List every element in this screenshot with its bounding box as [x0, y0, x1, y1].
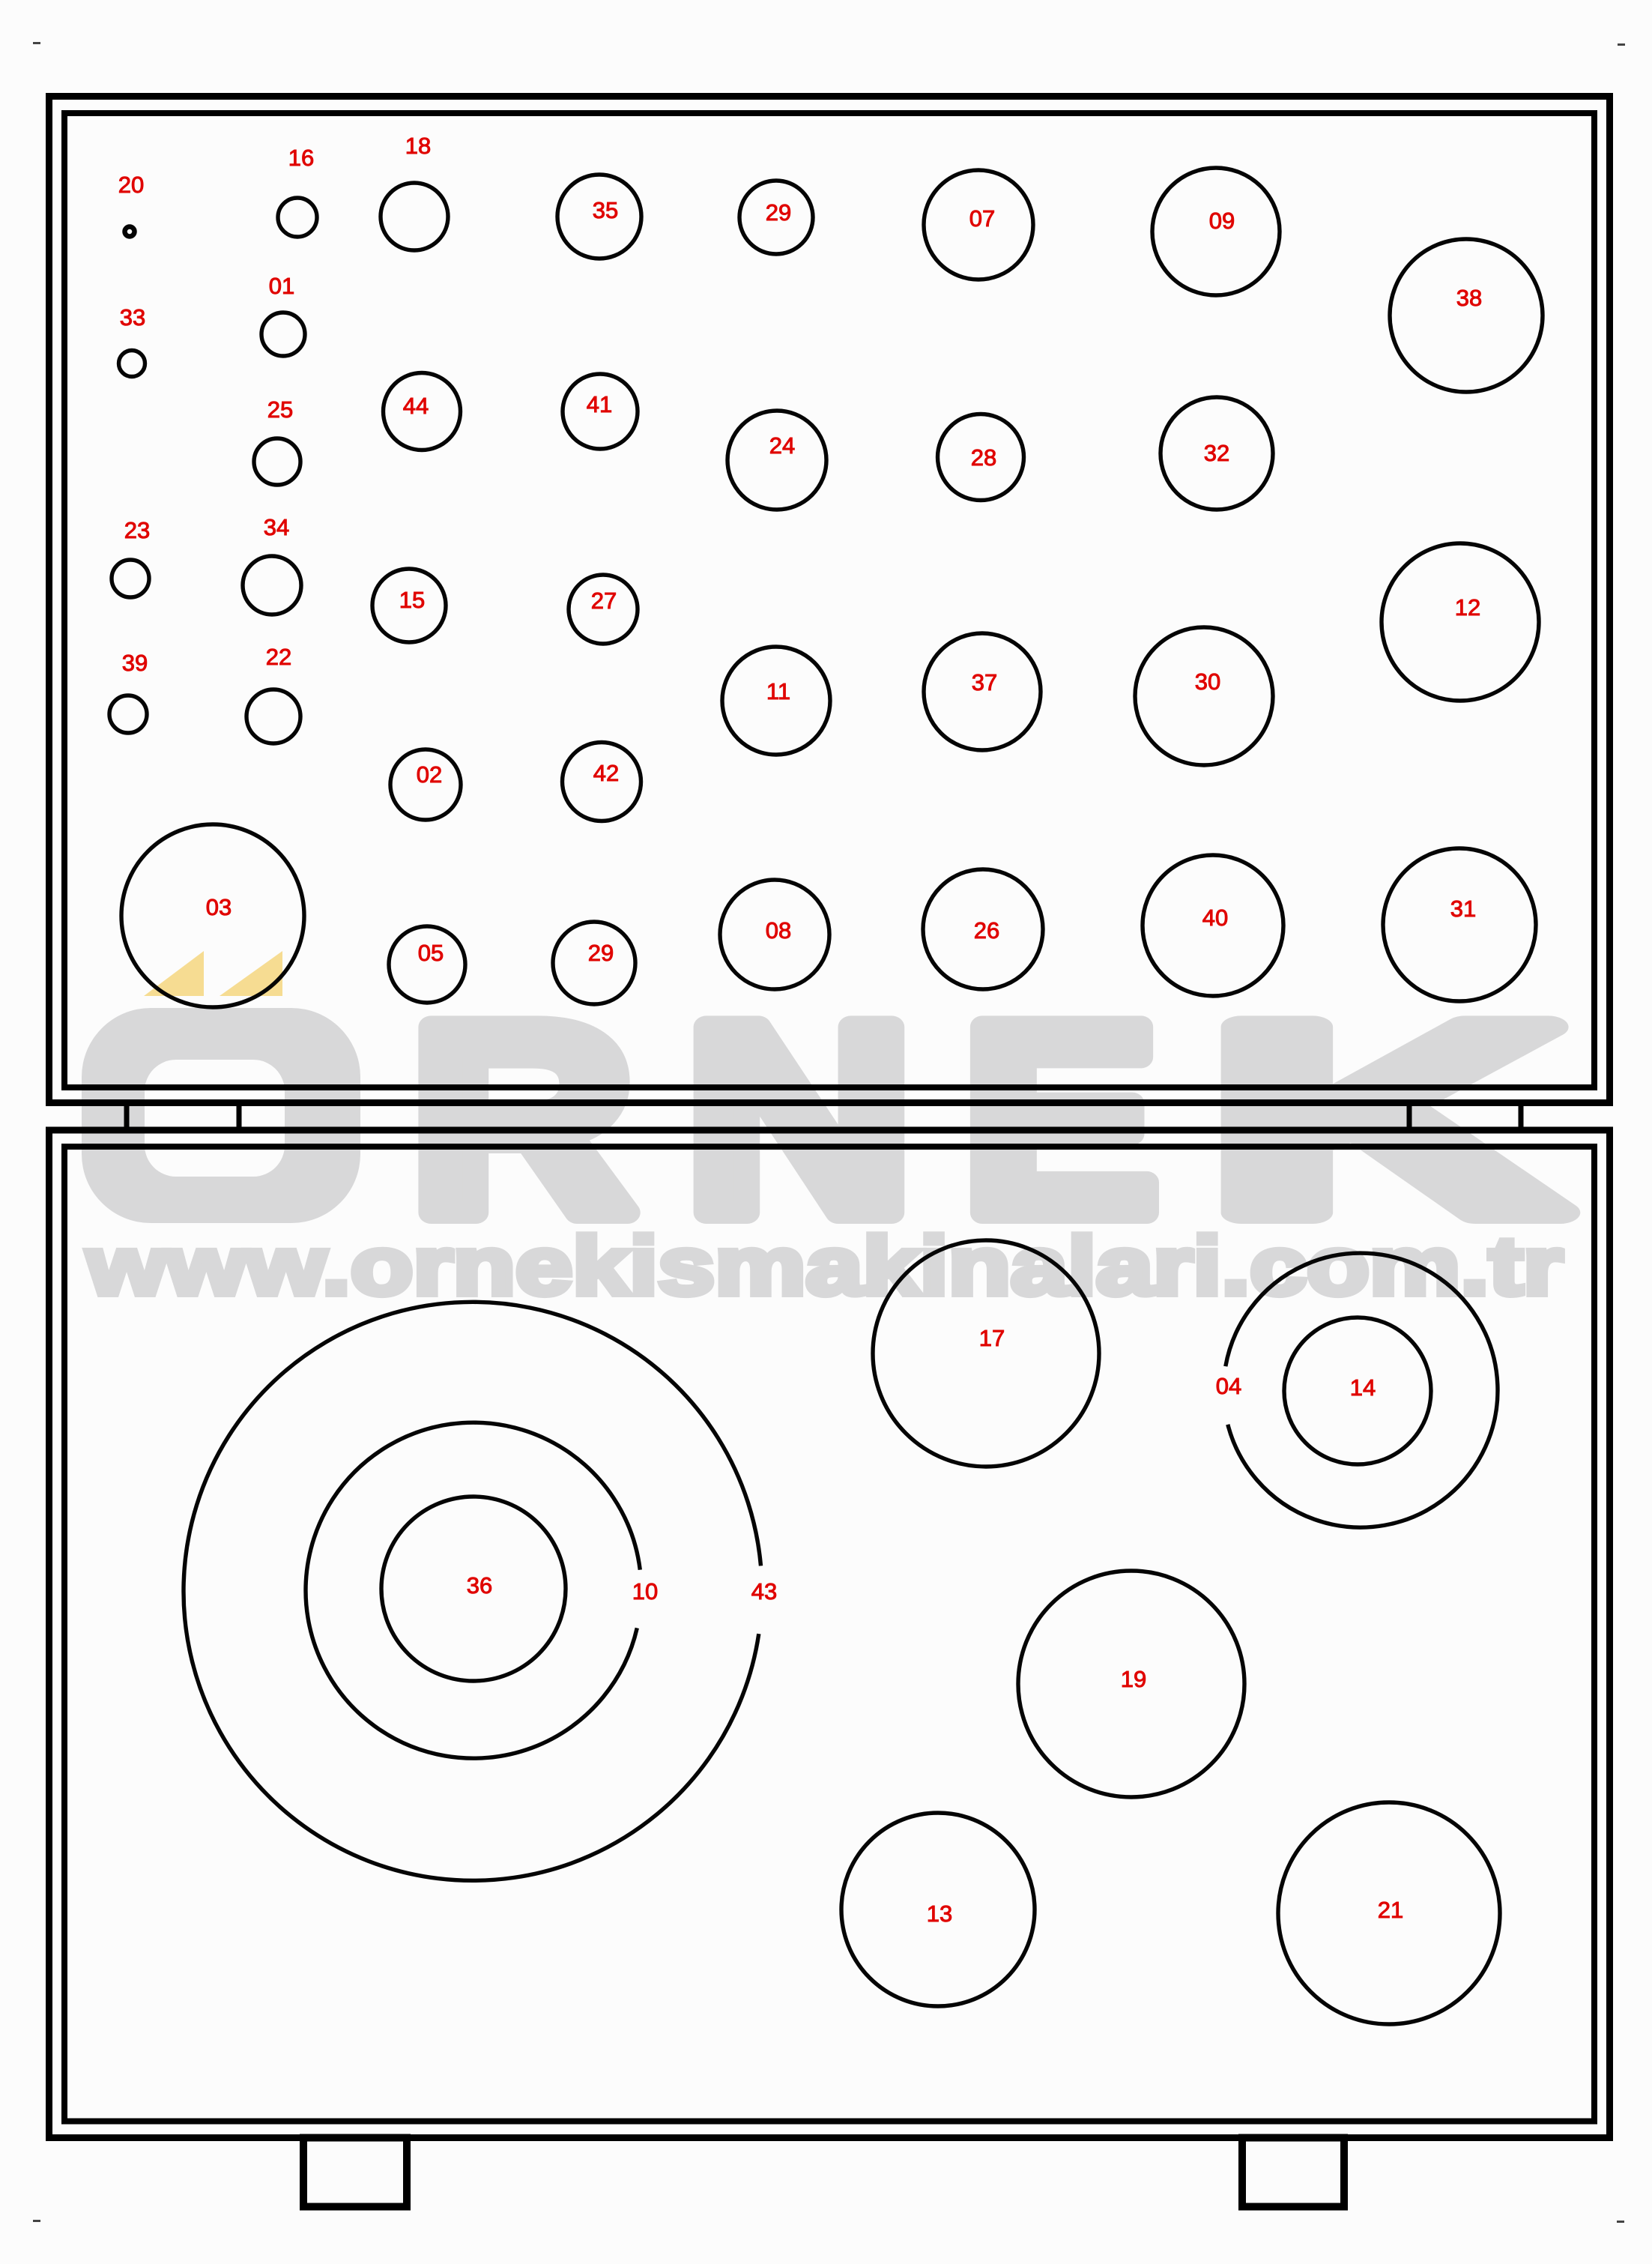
svg-text:29: 29 — [766, 199, 791, 226]
svg-text:40: 40 — [1202, 905, 1228, 931]
svg-text:www.ornekismakinalari.com.tr: www.ornekismakinalari.com.tr — [86, 1220, 1563, 1312]
svg-text:01: 01 — [269, 273, 294, 299]
svg-text:33: 33 — [120, 304, 145, 330]
svg-text:05: 05 — [418, 940, 444, 966]
svg-text:03: 03 — [206, 894, 232, 920]
svg-text:11: 11 — [766, 678, 790, 704]
svg-text:25: 25 — [267, 396, 293, 423]
svg-text:26: 26 — [974, 917, 999, 944]
svg-text:44: 44 — [403, 393, 429, 419]
svg-text:14: 14 — [1350, 1374, 1376, 1401]
svg-text:38: 38 — [1456, 285, 1482, 311]
svg-text:29: 29 — [588, 940, 614, 966]
svg-text:31: 31 — [1450, 896, 1476, 922]
svg-text:02: 02 — [417, 761, 442, 788]
svg-text:19: 19 — [1121, 1666, 1146, 1692]
svg-text:30: 30 — [1195, 668, 1220, 695]
svg-text:15: 15 — [399, 587, 425, 613]
svg-text:12: 12 — [1455, 594, 1480, 621]
svg-text:09: 09 — [1209, 208, 1235, 234]
svg-text:17: 17 — [979, 1325, 1005, 1351]
svg-text:23: 23 — [124, 517, 150, 543]
svg-text:20: 20 — [118, 172, 144, 198]
svg-text:36: 36 — [467, 1572, 492, 1599]
svg-text:07: 07 — [969, 205, 995, 232]
svg-text:37: 37 — [972, 669, 997, 695]
svg-text:24: 24 — [769, 432, 795, 459]
svg-text:28: 28 — [971, 444, 996, 471]
svg-text:08: 08 — [766, 917, 791, 944]
svg-text:34: 34 — [264, 514, 289, 540]
svg-text:16: 16 — [288, 145, 314, 171]
svg-text:10: 10 — [632, 1578, 658, 1605]
svg-text:27: 27 — [591, 588, 617, 614]
svg-text:41: 41 — [587, 391, 612, 417]
svg-text:21: 21 — [1378, 1897, 1403, 1923]
svg-text:22: 22 — [266, 644, 291, 670]
svg-text:32: 32 — [1204, 440, 1229, 466]
svg-text:13: 13 — [927, 1901, 952, 1927]
svg-text:43: 43 — [751, 1578, 777, 1605]
svg-text:18: 18 — [405, 133, 431, 159]
svg-text:04: 04 — [1216, 1373, 1241, 1399]
svg-text:39: 39 — [122, 650, 148, 676]
svg-text:35: 35 — [593, 197, 618, 223]
svg-text:42: 42 — [593, 760, 619, 786]
